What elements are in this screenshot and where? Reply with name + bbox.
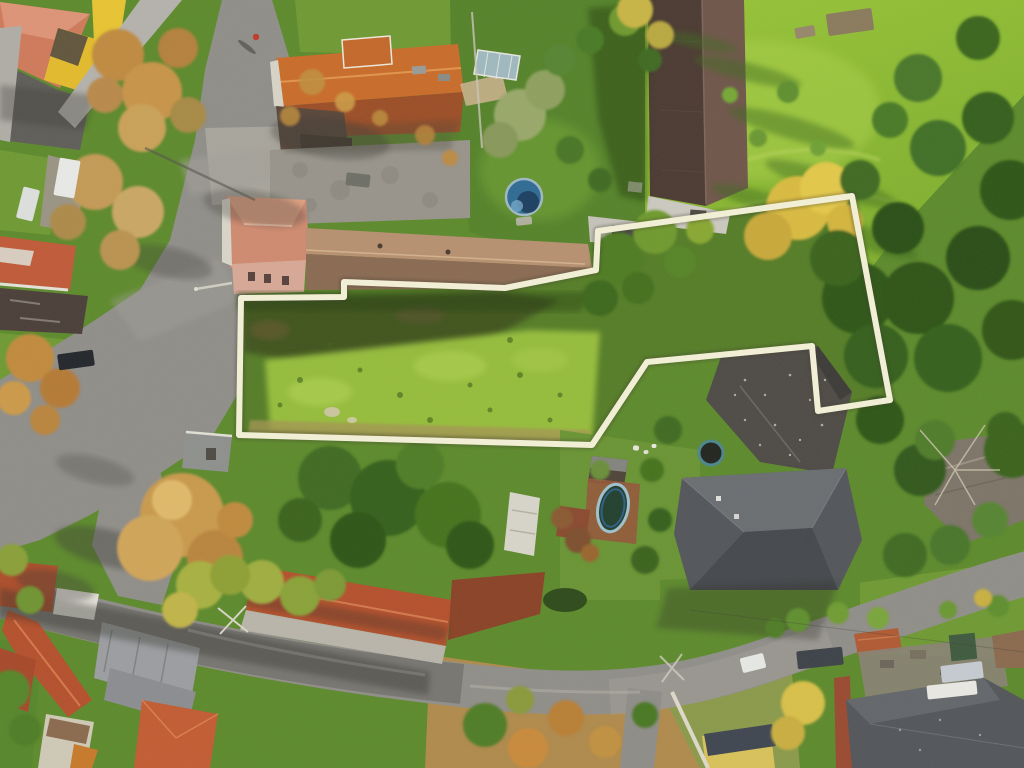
aerial-photo <box>0 0 1024 768</box>
photo-grain <box>0 0 1024 768</box>
aerial-photo-canvas <box>0 0 1024 768</box>
